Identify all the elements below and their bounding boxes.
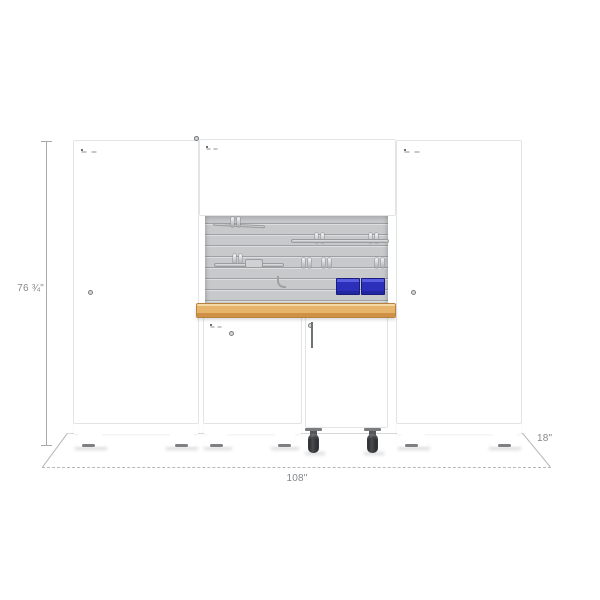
workbench-top (196, 303, 396, 318)
slatwall-panel (205, 214, 388, 304)
leveling-foot (175, 444, 188, 447)
storage-bin (361, 278, 385, 295)
cabinet-door-right (81, 149, 83, 151)
leveling-foot (278, 444, 291, 447)
locker-cabinet-left (73, 140, 199, 424)
cabinet-base (397, 424, 521, 434)
depth-dimension-label: 18" (537, 433, 552, 444)
lock-icon (411, 290, 416, 295)
wall-cabinet-unit (199, 139, 396, 216)
shadow (489, 447, 521, 450)
lock-icon (229, 331, 234, 336)
cabinet-door-right (210, 324, 212, 326)
shadow (166, 447, 198, 450)
cabinet-door-right (404, 149, 406, 151)
height-dimension-tick-bottom (41, 445, 52, 446)
base-cabinet (203, 317, 302, 424)
slatwall-hook-icon (375, 258, 384, 268)
slatwall-hook-icon (231, 217, 240, 227)
storage-bins (336, 278, 385, 295)
caster-wheel-icon (308, 434, 319, 453)
shadow (204, 447, 232, 450)
product-dimension-diagram: 76 ¾" 108" 18" (0, 0, 600, 600)
leveling-foot (210, 444, 223, 447)
hook (375, 258, 378, 268)
locker-cabinet-right (396, 140, 522, 424)
height-dimension-label: 76 ¾" (6, 283, 44, 294)
width-dimension-label: 108" (262, 473, 332, 484)
caster-wheel-icon (367, 434, 378, 453)
lock-icon (194, 136, 199, 141)
slatwall-hook-icon (322, 258, 331, 268)
tool-cart (305, 317, 388, 428)
caster-wheel (308, 428, 319, 453)
leveling-foot (405, 444, 418, 447)
hook (308, 258, 311, 268)
hook (322, 258, 325, 268)
slatwall-hook-icon (302, 258, 311, 268)
cabinet-door-right (206, 146, 208, 148)
floor-front-dashed-line (42, 467, 551, 468)
hanging-level-tool (291, 239, 389, 243)
cabinet-base (204, 424, 301, 434)
hook (237, 217, 240, 227)
storage-bin (336, 278, 360, 295)
shadow (75, 447, 107, 450)
hook (302, 258, 305, 268)
shadow (398, 447, 430, 450)
slatwall-frame (197, 214, 396, 304)
shadow (271, 447, 299, 450)
cabinet-base (74, 424, 198, 434)
hook (381, 258, 384, 268)
slatwall-hook-icon (277, 276, 286, 288)
hanging-tool-body (245, 259, 263, 268)
caster-wheel (367, 428, 378, 453)
height-dimension-tick-top (41, 141, 52, 142)
hook (328, 258, 331, 268)
leveling-foot (498, 444, 511, 447)
drawer-face (311, 322, 313, 348)
leveling-foot (82, 444, 95, 447)
lock-icon (88, 290, 93, 295)
height-dimension-line (46, 141, 47, 446)
hook (231, 217, 234, 227)
